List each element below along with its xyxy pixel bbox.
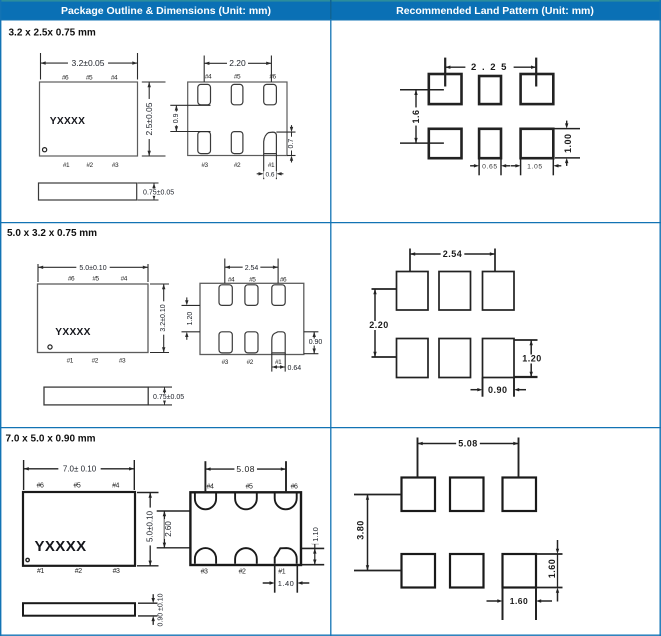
svg-text:1.05: 1.05 bbox=[527, 163, 543, 170]
svg-text:#5: #5 bbox=[234, 74, 241, 81]
svg-text:0.6: 0.6 bbox=[265, 171, 274, 178]
svg-text:YXXXX: YXXXX bbox=[50, 116, 85, 127]
svg-text:#4: #4 bbox=[205, 74, 212, 81]
svg-text:#3: #3 bbox=[113, 568, 120, 575]
svg-text:0.90 ±0.10: 0.90 ±0.10 bbox=[157, 593, 164, 626]
svg-text:#6: #6 bbox=[269, 74, 276, 81]
svg-text:#6: #6 bbox=[291, 484, 298, 491]
svg-text:5.0 x 3.2 x 0.75 mm: 5.0 x 3.2 x 0.75 mm bbox=[7, 228, 97, 239]
svg-text:#2: #2 bbox=[234, 162, 241, 169]
svg-text:#4: #4 bbox=[111, 75, 118, 82]
svg-text:#2: #2 bbox=[247, 359, 254, 366]
svg-text:#2: #2 bbox=[75, 568, 82, 575]
svg-text:1.60: 1.60 bbox=[547, 559, 557, 579]
svg-text:2.5±0.05: 2.5±0.05 bbox=[144, 102, 154, 135]
svg-text:#2: #2 bbox=[86, 162, 93, 169]
svg-text:YXXXX: YXXXX bbox=[55, 327, 90, 338]
svg-text:5.08: 5.08 bbox=[458, 439, 478, 449]
svg-text:1.6: 1.6 bbox=[411, 109, 421, 123]
svg-text:2.54: 2.54 bbox=[245, 265, 259, 272]
svg-text:#5: #5 bbox=[86, 75, 93, 82]
svg-text:3.2±0.05: 3.2±0.05 bbox=[71, 58, 104, 68]
svg-text:#6: #6 bbox=[62, 75, 69, 82]
svg-text:#5: #5 bbox=[92, 276, 99, 283]
svg-text:Package Outline & Dimensions (: Package Outline & Dimensions (Unit: mm) bbox=[61, 5, 271, 17]
svg-text:7.0± 0.10: 7.0± 0.10 bbox=[63, 465, 97, 474]
svg-text:#5: #5 bbox=[249, 277, 256, 284]
svg-text:1.20: 1.20 bbox=[187, 312, 194, 326]
svg-text:0.75±0.05: 0.75±0.05 bbox=[153, 394, 184, 401]
svg-text:2.20: 2.20 bbox=[369, 320, 389, 330]
svg-text:#6: #6 bbox=[68, 276, 75, 283]
svg-text:#5: #5 bbox=[74, 483, 81, 490]
svg-text:2 . 2 5: 2 . 2 5 bbox=[471, 62, 508, 73]
svg-text:#4: #4 bbox=[228, 277, 235, 284]
svg-text:#3: #3 bbox=[222, 359, 229, 366]
svg-text:#1: #1 bbox=[63, 162, 70, 169]
svg-text:#5: #5 bbox=[246, 484, 253, 491]
svg-text:#1: #1 bbox=[275, 359, 282, 366]
svg-text:3.2±0.10: 3.2±0.10 bbox=[160, 304, 167, 331]
svg-text:2.54: 2.54 bbox=[443, 249, 463, 259]
svg-text:1.60: 1.60 bbox=[510, 596, 529, 606]
svg-text:1.10: 1.10 bbox=[311, 527, 320, 542]
svg-text:0.7: 0.7 bbox=[288, 139, 295, 149]
svg-text:#4: #4 bbox=[121, 276, 128, 283]
svg-text:0.75±0.05: 0.75±0.05 bbox=[143, 189, 174, 196]
svg-text:3.2 x 2.5x 0.75 mm: 3.2 x 2.5x 0.75 mm bbox=[9, 27, 96, 38]
svg-text:#4: #4 bbox=[112, 483, 119, 490]
svg-text:5.0±0.10: 5.0±0.10 bbox=[79, 265, 106, 272]
svg-text:#3: #3 bbox=[201, 162, 208, 169]
svg-text:#3: #3 bbox=[201, 569, 208, 576]
svg-text:0.90: 0.90 bbox=[309, 339, 323, 346]
svg-text:1.20: 1.20 bbox=[522, 354, 542, 364]
svg-text:YXXXX: YXXXX bbox=[34, 538, 86, 555]
svg-text:0.64: 0.64 bbox=[288, 365, 302, 372]
svg-text:1.40: 1.40 bbox=[278, 579, 295, 588]
svg-text:#1: #1 bbox=[278, 569, 285, 576]
svg-text:#3: #3 bbox=[119, 358, 126, 365]
svg-text:2.20: 2.20 bbox=[229, 58, 246, 68]
svg-text:#1: #1 bbox=[67, 358, 74, 365]
svg-text:#6: #6 bbox=[280, 277, 287, 284]
svg-text:#3: #3 bbox=[112, 162, 119, 169]
svg-text:2.60: 2.60 bbox=[164, 521, 173, 537]
svg-text:1.00: 1.00 bbox=[563, 133, 573, 153]
svg-text:7.0 x 5.0 x 0.90 mm: 7.0 x 5.0 x 0.90 mm bbox=[6, 433, 96, 444]
svg-text:#1: #1 bbox=[37, 568, 44, 575]
svg-text:0.90: 0.90 bbox=[488, 385, 508, 395]
svg-text:Recommended Land Pattern (Unit: Recommended Land Pattern (Unit: mm) bbox=[396, 5, 594, 17]
svg-text:5.0±0.10: 5.0±0.10 bbox=[146, 510, 155, 542]
svg-text:3.80: 3.80 bbox=[356, 520, 366, 540]
svg-text:5.08: 5.08 bbox=[236, 464, 255, 474]
svg-text:#6: #6 bbox=[37, 483, 44, 490]
svg-text:#2: #2 bbox=[239, 569, 246, 576]
svg-text:0.9: 0.9 bbox=[173, 113, 180, 123]
svg-text:0.65: 0.65 bbox=[482, 163, 498, 170]
svg-text:#4: #4 bbox=[207, 484, 214, 491]
svg-text:#2: #2 bbox=[92, 358, 99, 365]
svg-text:#1: #1 bbox=[268, 162, 275, 169]
